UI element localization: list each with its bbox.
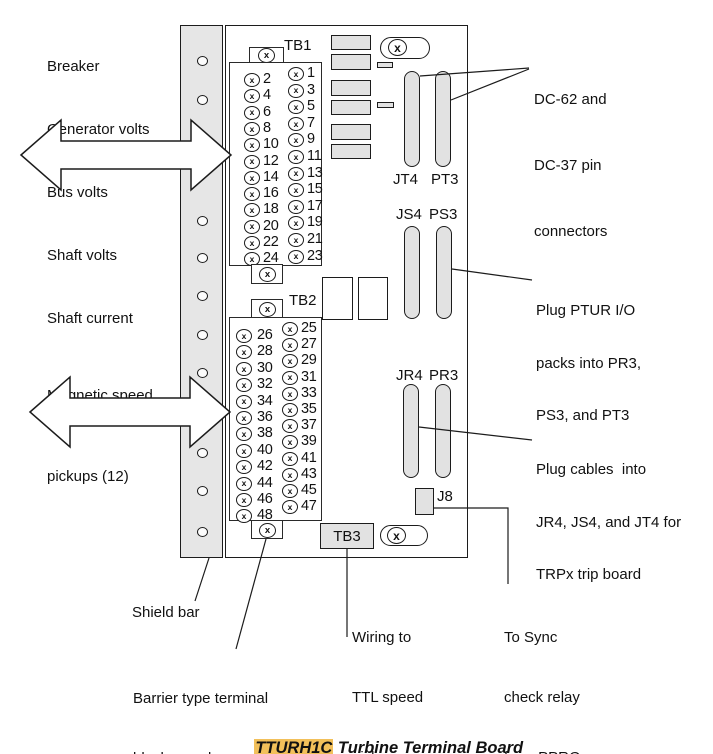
tb3-terminal-block: TB3 (320, 523, 374, 549)
connector-js4 (404, 226, 420, 319)
screw-terminal-icon: x (244, 89, 260, 103)
screw-terminal-icon: x (282, 403, 298, 417)
mounting-hole (197, 291, 208, 301)
screw-terminal-icon: x (282, 419, 298, 433)
terminal-number: 22 (263, 234, 279, 250)
tb1-bottom-tab: x (251, 264, 283, 284)
jt4-label: JT4 (393, 171, 418, 188)
screw-terminal-icon: x (236, 329, 252, 343)
screw-terminal-icon: x (244, 106, 260, 120)
tb2-bottom-tab: x (251, 520, 283, 539)
terminal-number: 39 (301, 433, 317, 449)
terminal-number: 8 (263, 120, 271, 136)
component-block (331, 35, 371, 70)
terminal-number: 11 (307, 148, 321, 164)
terminal-number: 33 (301, 385, 317, 401)
terminal-number: 15 (307, 181, 323, 197)
screw-terminal-icon: x (259, 523, 276, 538)
terminal-number: 29 (301, 352, 317, 368)
connector-ps3 (436, 226, 452, 319)
screw-terminal-icon: x (288, 250, 304, 264)
screw-terminal-icon: x (387, 527, 406, 544)
terminal-number: 4 (263, 87, 271, 103)
jumper-icon (377, 62, 393, 68)
terminal-number: 45 (301, 482, 317, 498)
screw-terminal-icon: x (288, 200, 304, 214)
screw-terminal-icon: x (244, 187, 260, 201)
screw-terminal-icon: x (236, 427, 252, 441)
screw-terminal-icon: x (236, 378, 252, 392)
mounting-hole (197, 368, 208, 378)
terminal-number: 32 (257, 376, 273, 392)
terminal-number: 28 (257, 343, 273, 359)
terminal-number: 47 (301, 498, 317, 514)
figure-caption: TTURH1C Turbine Terminal Board (236, 720, 523, 754)
screw-terminal-icon: x (288, 84, 304, 98)
mounting-slot: x (380, 525, 428, 546)
tb3-label: TB3 (333, 528, 361, 545)
screw-terminal-icon: x (244, 220, 260, 234)
mounting-hole (197, 95, 208, 105)
mounting-hole (197, 486, 208, 496)
terminal-number: 19 (307, 214, 323, 230)
screw-terminal-icon: x (288, 133, 304, 147)
screw-terminal-icon: x (236, 444, 252, 458)
terminal-number: 23 (307, 248, 323, 264)
screw-terminal-icon: x (244, 73, 260, 87)
terminal-number: 9 (307, 131, 315, 147)
screw-terminal-icon: x (244, 203, 260, 217)
terminal-number: 25 (301, 320, 317, 336)
terminal-number: 30 (257, 360, 273, 376)
screw-terminal-icon: x (288, 100, 304, 114)
tb2-top-tab: x (251, 299, 283, 318)
screw-terminal-icon: x (259, 267, 276, 282)
mounting-hole (197, 330, 208, 340)
screw-terminal-icon: x (236, 411, 252, 425)
screw-terminal-icon: x (282, 500, 298, 514)
jumper-icon (377, 102, 394, 108)
screw-terminal-icon: x (288, 183, 304, 197)
terminal-number: 34 (257, 393, 273, 409)
screw-terminal-icon: x (282, 387, 298, 401)
terminal-number: 6 (263, 104, 271, 120)
connector-jt4 (404, 71, 420, 167)
component-square (358, 277, 388, 320)
component-square (322, 277, 353, 320)
tb2-terminal-block: x25x27x29x31x33x35x37x39x41x43x45x47x26x… (229, 317, 322, 521)
screw-terminal-icon: x (288, 167, 304, 181)
terminal-number: 12 (263, 153, 279, 169)
screw-terminal-icon: x (282, 435, 298, 449)
terminal-number: 27 (301, 336, 317, 352)
mounting-hole (197, 216, 208, 226)
terminal-number: 37 (301, 417, 317, 433)
screw-terminal-icon: x (244, 171, 260, 185)
terminal-number: 41 (301, 450, 317, 466)
terminal-number: 42 (257, 458, 273, 474)
terminal-number: 14 (263, 169, 279, 185)
terminal-number: 36 (257, 409, 273, 425)
caption-highlight: TTURH1C (254, 739, 333, 754)
dc-connectors-annotation: DC-62 and DC-37 pin connectors (534, 45, 607, 287)
terminal-number: 3 (307, 82, 315, 98)
terminal-number: 10 (263, 136, 279, 152)
screw-terminal-icon: x (236, 362, 252, 376)
js4-label: JS4 (396, 206, 422, 223)
j8-label: J8 (437, 488, 453, 505)
screw-terminal-icon: x (258, 48, 275, 63)
caption-text: Turbine Terminal Board (333, 739, 523, 754)
terminal-number: 1 (307, 65, 315, 81)
terminal-number: 16 (263, 185, 279, 201)
terminal-number: 17 (307, 198, 323, 214)
screw-terminal-icon: x (288, 233, 304, 247)
terminal-number: 46 (257, 491, 273, 507)
terminal-number: 44 (257, 475, 273, 491)
connector-pr3 (435, 384, 451, 478)
terminal-number: 18 (263, 201, 279, 217)
screw-terminal-icon: x (282, 452, 298, 466)
jr4-label: JR4 (396, 367, 423, 384)
connector-pt3 (435, 71, 451, 167)
turbine-terminal-board-diagram: TB1 x x1x3x5x7x9x11x13x15x17x19x21x23x2x… (0, 0, 713, 754)
terminal-number: 43 (301, 466, 317, 482)
screw-terminal-icon: x (288, 150, 304, 164)
terminal-number: 7 (307, 115, 315, 131)
mounting-slot: x (380, 37, 430, 59)
screw-terminal-icon: x (282, 484, 298, 498)
connector-j8 (415, 488, 434, 515)
screw-terminal-icon: x (244, 122, 260, 136)
terminal-number: 20 (263, 218, 279, 234)
terminal-number: 21 (307, 231, 323, 247)
screw-terminal-icon: x (282, 371, 298, 385)
pt3-label: PT3 (431, 171, 459, 188)
screw-terminal-icon: x (236, 395, 252, 409)
leader-shield (195, 558, 209, 601)
terminal-number: 5 (307, 98, 315, 114)
tb1-label: TB1 (284, 37, 312, 54)
mounting-hole (197, 527, 208, 537)
component-block (331, 124, 371, 159)
tb1-terminal-block: x1x3x5x7x9x11x13x15x17x19x21x23x2x4x6x8x… (229, 62, 322, 266)
screw-terminal-icon: x (244, 138, 260, 152)
terminal-number: 35 (301, 401, 317, 417)
terminal-number: 13 (307, 165, 323, 181)
magnetic-pickups-annotation: Magnetic speed pickups (12) (47, 328, 153, 544)
screw-terminal-icon: x (288, 117, 304, 131)
shield-bar (180, 25, 223, 558)
terminal-number: 38 (257, 425, 273, 441)
mounting-hole (197, 253, 208, 263)
screw-terminal-icon: x (236, 460, 252, 474)
screw-terminal-icon: x (236, 477, 252, 491)
screw-terminal-icon: x (236, 493, 252, 507)
terminal-number: 2 (263, 71, 271, 87)
terminal-number: 31 (301, 369, 317, 385)
component-block (331, 80, 371, 115)
screw-terminal-icon: x (282, 468, 298, 482)
screw-terminal-icon: x (282, 354, 298, 368)
screw-terminal-icon: x (388, 39, 407, 56)
connector-jr4 (403, 384, 419, 478)
terminal-number: 26 (257, 327, 273, 343)
screw-terminal-icon: x (288, 216, 304, 230)
screw-terminal-icon: x (282, 338, 298, 352)
mounting-hole (197, 448, 208, 458)
screw-terminal-icon: x (259, 302, 276, 317)
screw-terminal-icon: x (288, 67, 304, 81)
tb2-label: TB2 (289, 292, 317, 309)
mounting-hole (197, 56, 208, 66)
pr3-label: PR3 (429, 367, 458, 384)
terminal-number: 40 (257, 442, 273, 458)
screw-terminal-icon: x (236, 345, 252, 359)
signal-list-annotation: Breaker Generator volts Bus volts Shaft … (47, 14, 150, 371)
screw-terminal-icon: x (244, 155, 260, 169)
screw-terminal-icon: x (282, 322, 298, 336)
shield-bar-annotation: Shield bar (132, 602, 200, 623)
ps3-label: PS3 (429, 206, 457, 223)
screw-terminal-icon: x (244, 236, 260, 250)
